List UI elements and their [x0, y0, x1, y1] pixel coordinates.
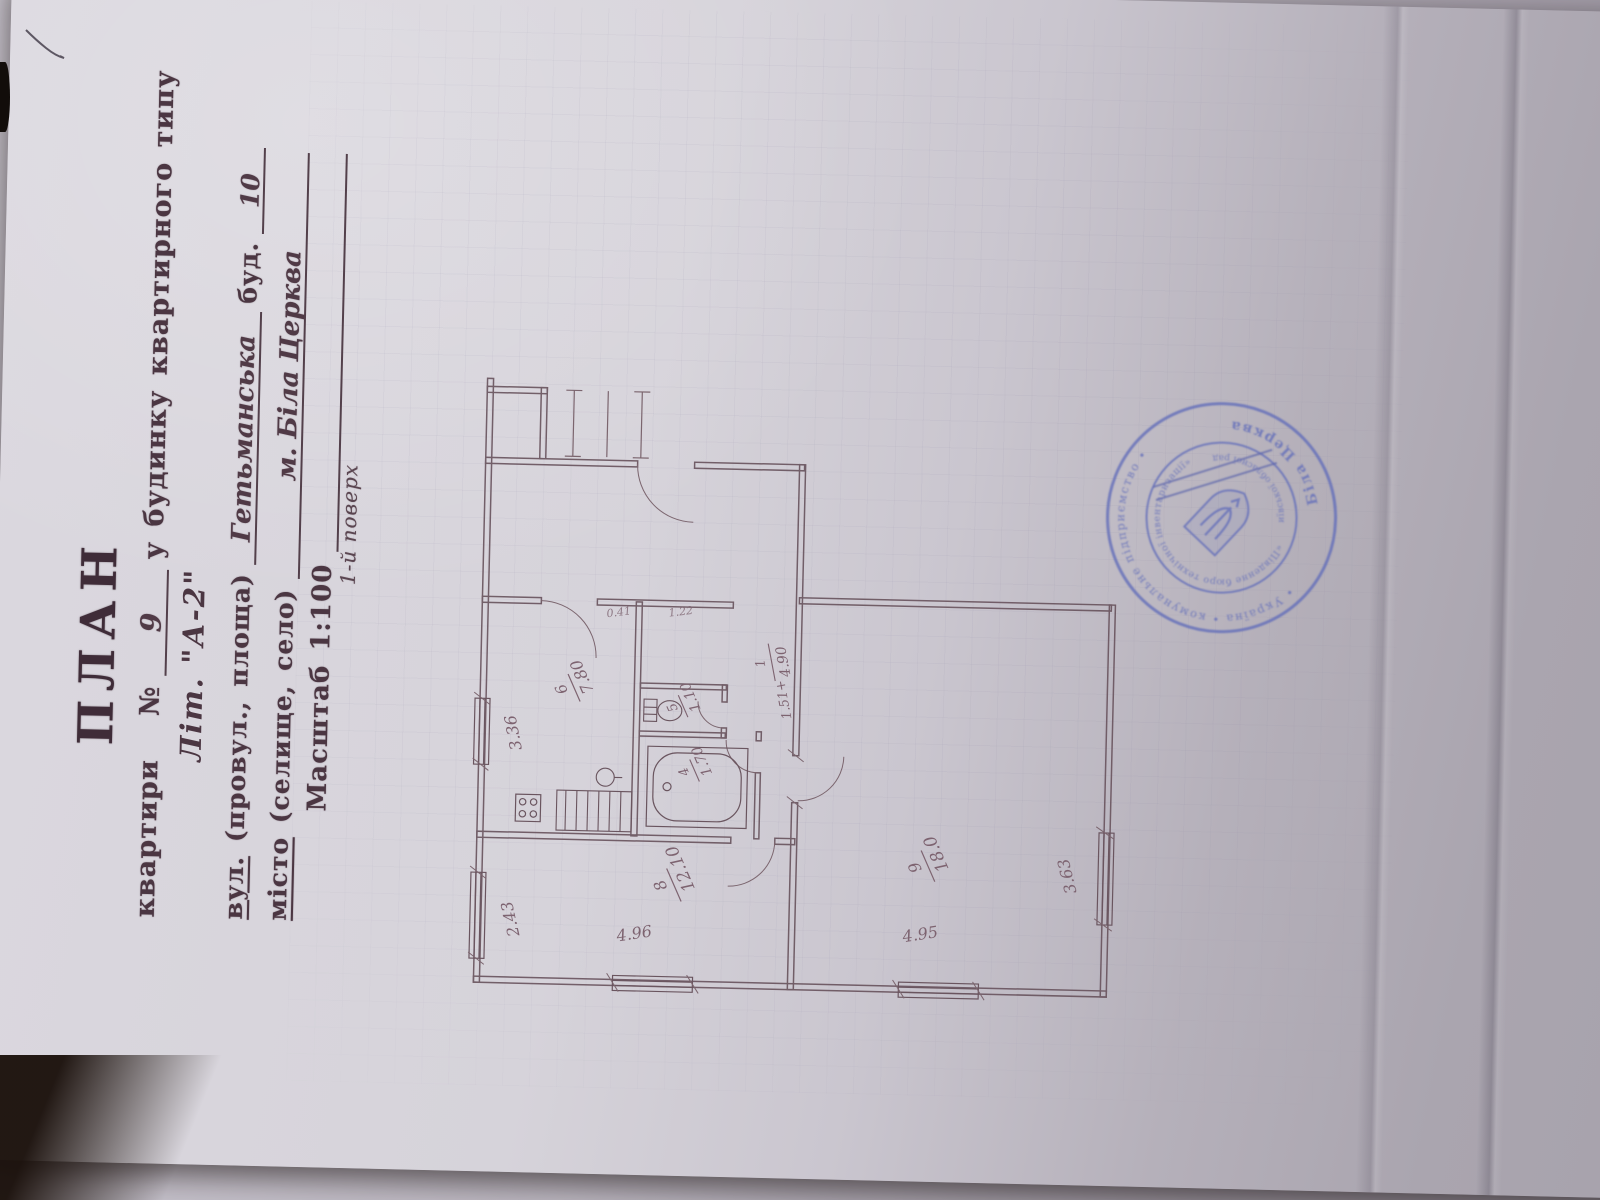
- apartment-label: квартири №: [130, 685, 166, 918]
- svg-text:4: 4: [676, 765, 693, 780]
- room-label-9: 9 18.0: [897, 832, 956, 890]
- street-line: вул. (провул., площа) Гетьманська буд. 1…: [216, 147, 266, 920]
- floor-value: 1-й поверх: [336, 464, 363, 586]
- pen-scribble: [0, 0, 120, 100]
- document-content: ПЛАН квартири № 9 у будинку квартирного …: [60, 61, 1382, 1041]
- dim-door-b: 1.22: [668, 604, 694, 620]
- entrance-steps: [565, 390, 651, 458]
- city-label-rest: (селище, село): [265, 588, 300, 837]
- round-stamp: • Україна • комунальне підприємство • Бі…: [1091, 387, 1353, 649]
- table-shadow-corner: [0, 1055, 300, 1200]
- building-no-value: 10: [236, 173, 266, 208]
- building-no-label: буд.: [233, 241, 263, 304]
- trident-emblem-icon: [1184, 479, 1259, 555]
- city-label: місто: [263, 837, 294, 921]
- street-value: Гетьманська: [227, 334, 262, 542]
- sink-icon: [596, 768, 622, 787]
- dim-kitchen-top: 3.36: [501, 713, 526, 752]
- apartment-number-blank: 9: [132, 569, 169, 676]
- city-blank: м. Біла Церква: [268, 152, 310, 579]
- stamp-body: • Україна • комунальне підприємство • Бі…: [1091, 387, 1353, 649]
- photo-of-document: ПЛАН квартири № 9 у будинку квартирного …: [0, 0, 1600, 1200]
- dim-room8-side: 4.96: [614, 921, 653, 945]
- svg-text:1.51+: 1.51+: [773, 679, 795, 721]
- street-label-rest: (провул., площа): [220, 573, 256, 856]
- svg-text:1: 1: [753, 658, 769, 669]
- apartment-line: квартири № 9 у будинку квартирного типу: [126, 69, 181, 918]
- liter-value: Літ. "А-2": [174, 567, 213, 761]
- street-blank: Гетьманська: [224, 311, 262, 565]
- paper-sheet: ПЛАН квартири № 9 у будинку квартирного …: [0, 0, 1600, 1200]
- city-value: м. Біла Церква: [272, 250, 307, 482]
- svg-text:4.90: 4.90: [773, 645, 795, 680]
- svg-text:6: 6: [551, 681, 571, 697]
- room-label-bath: 4 1.70: [670, 743, 716, 788]
- street-label: вул.: [219, 855, 249, 919]
- svg-text:5: 5: [665, 700, 682, 714]
- dim-door-a: 0.41: [606, 604, 632, 620]
- scale-value: Масштаб 1:100: [302, 563, 338, 811]
- floor-line: 1-й поверх: [336, 464, 363, 586]
- building-type-label: у будинку квартирного типу: [138, 69, 181, 559]
- room-label-8: 8 12.10: [639, 842, 702, 910]
- dim-room9-side: 4.95: [900, 922, 939, 946]
- svg-text:8: 8: [650, 877, 671, 894]
- building-no-blank: 10: [233, 147, 266, 234]
- dim-room9-bottom: 3.63: [1054, 857, 1081, 896]
- apartment-number-value: 9: [135, 612, 168, 632]
- paper-crease: [1476, 9, 1530, 1195]
- room-label-kitchen: 6 7.80: [545, 657, 599, 710]
- floor-plan: 8 12.10 9 18.0 6 7.80 4: [451, 300, 1158, 1036]
- kitchen-counter-icon: [556, 790, 632, 832]
- svg-text:9: 9: [904, 859, 925, 876]
- dimension-labels: 2.43 3.36 4.96 4.95 3.63 0.41 1.22: [495, 599, 1087, 956]
- liter-line: Літ. "А-2": [174, 567, 213, 761]
- page-title: ПЛАН: [63, 311, 135, 972]
- stove-icon: [515, 794, 541, 822]
- room-labels: 8 12.10 9 18.0 6 7.80 4: [539, 634, 961, 917]
- dim-room8-top: 2.43: [497, 900, 524, 940]
- dimension-ticks: [467, 692, 1117, 1003]
